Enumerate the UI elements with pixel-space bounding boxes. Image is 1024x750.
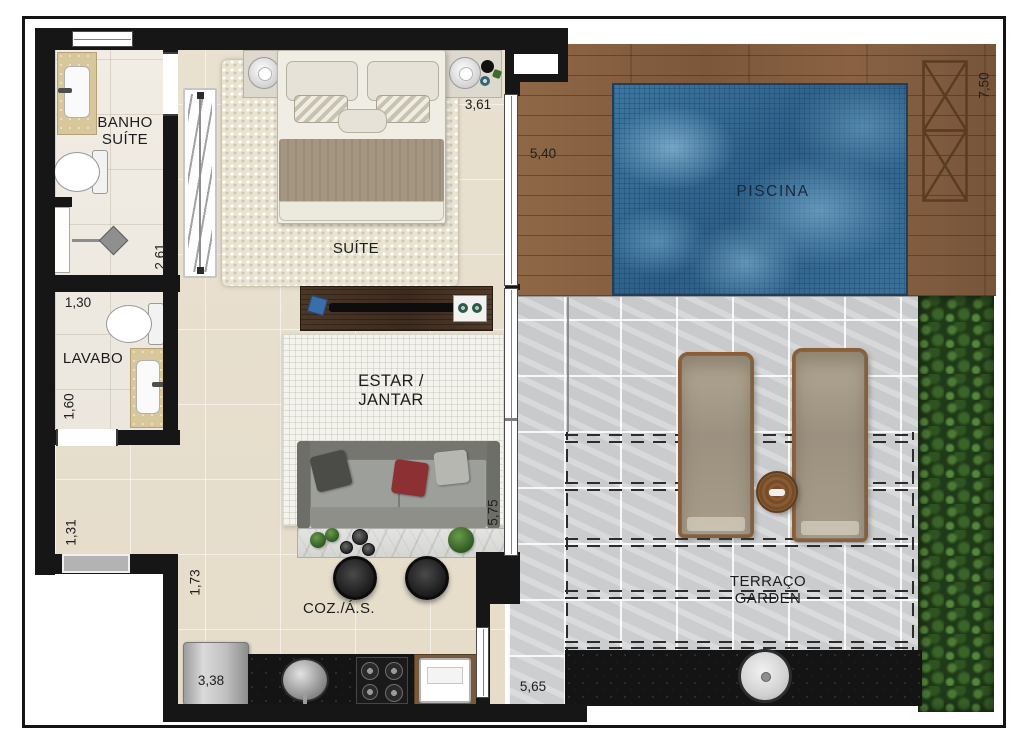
drawing-border: [22, 16, 1006, 728]
floor-plan: BANHO SUÍTE SUÍTE LAVABO ESTAR / JANTAR …: [0, 0, 1024, 750]
